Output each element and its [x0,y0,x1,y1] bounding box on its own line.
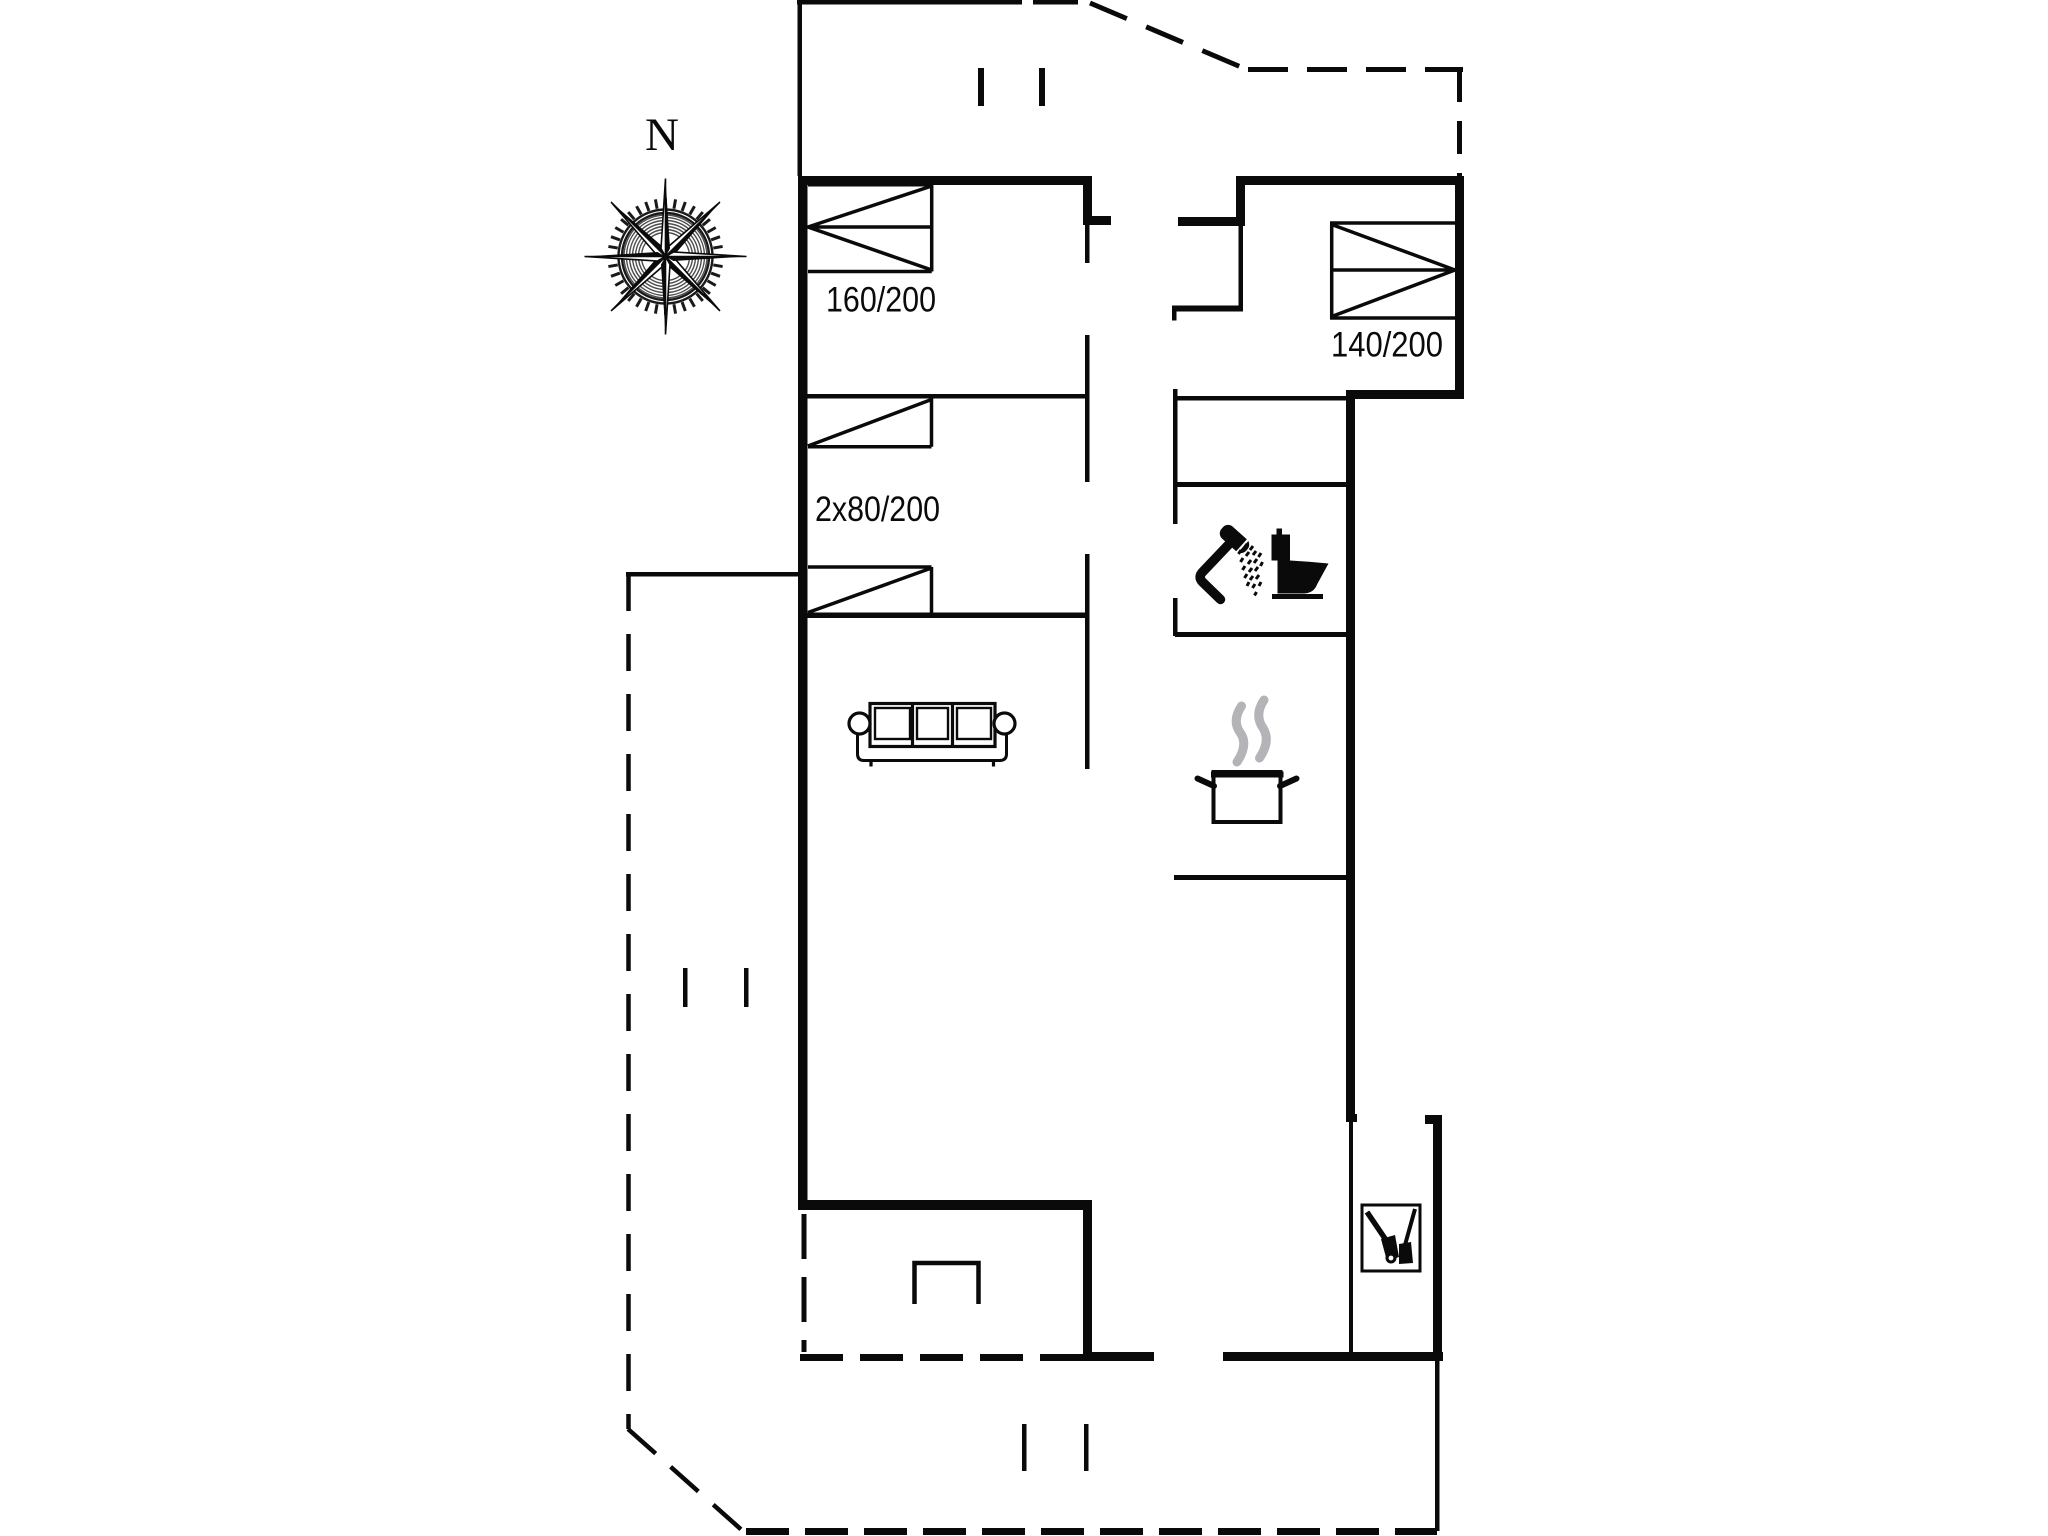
svg-text:160/200: 160/200 [826,281,936,320]
svg-text:140/200: 140/200 [1331,326,1443,365]
svg-text:N: N [645,109,679,161]
svg-text:2x80/200: 2x80/200 [815,490,940,529]
